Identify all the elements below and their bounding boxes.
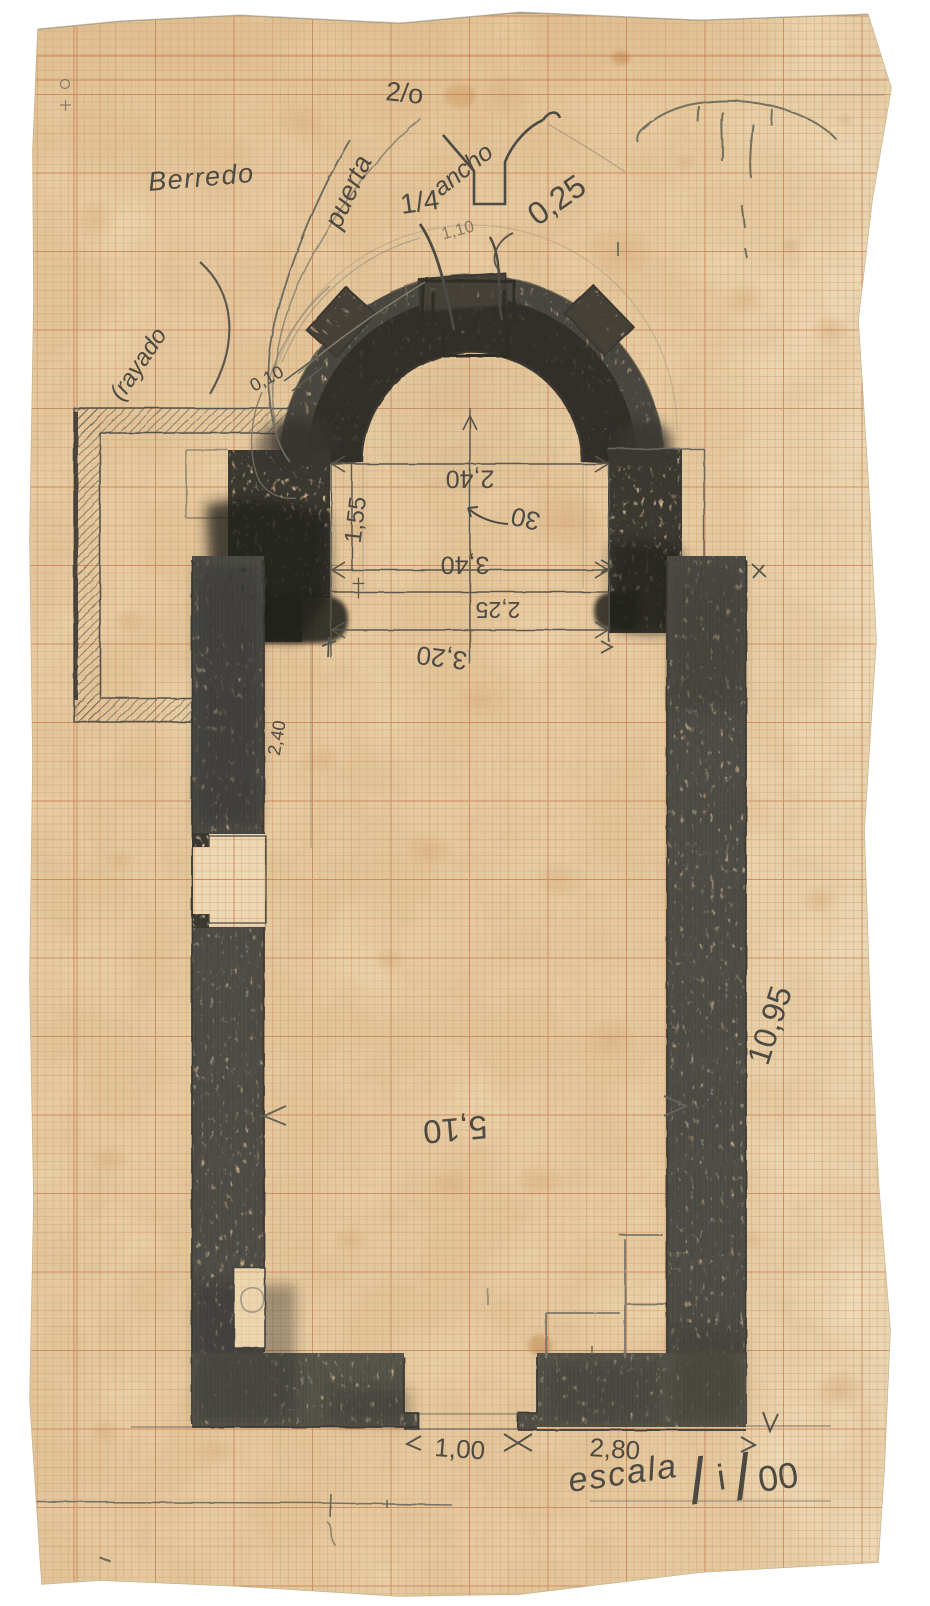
svg-text:1,55: 1,55 xyxy=(340,495,372,545)
svg-text:00: 00 xyxy=(755,1454,800,1500)
svg-text:1,00: 1,00 xyxy=(434,1432,487,1465)
svg-text:2/o: 2/o xyxy=(384,76,424,110)
svg-text:2,40: 2,40 xyxy=(446,464,495,492)
svg-text:3,20: 3,20 xyxy=(415,640,469,676)
svg-text:5,10: 5,10 xyxy=(422,1109,489,1151)
svg-text:3,40: 3,40 xyxy=(441,550,490,578)
svg-text:1/4: 1/4 xyxy=(398,184,441,220)
svg-text:2,25: 2,25 xyxy=(476,597,521,623)
